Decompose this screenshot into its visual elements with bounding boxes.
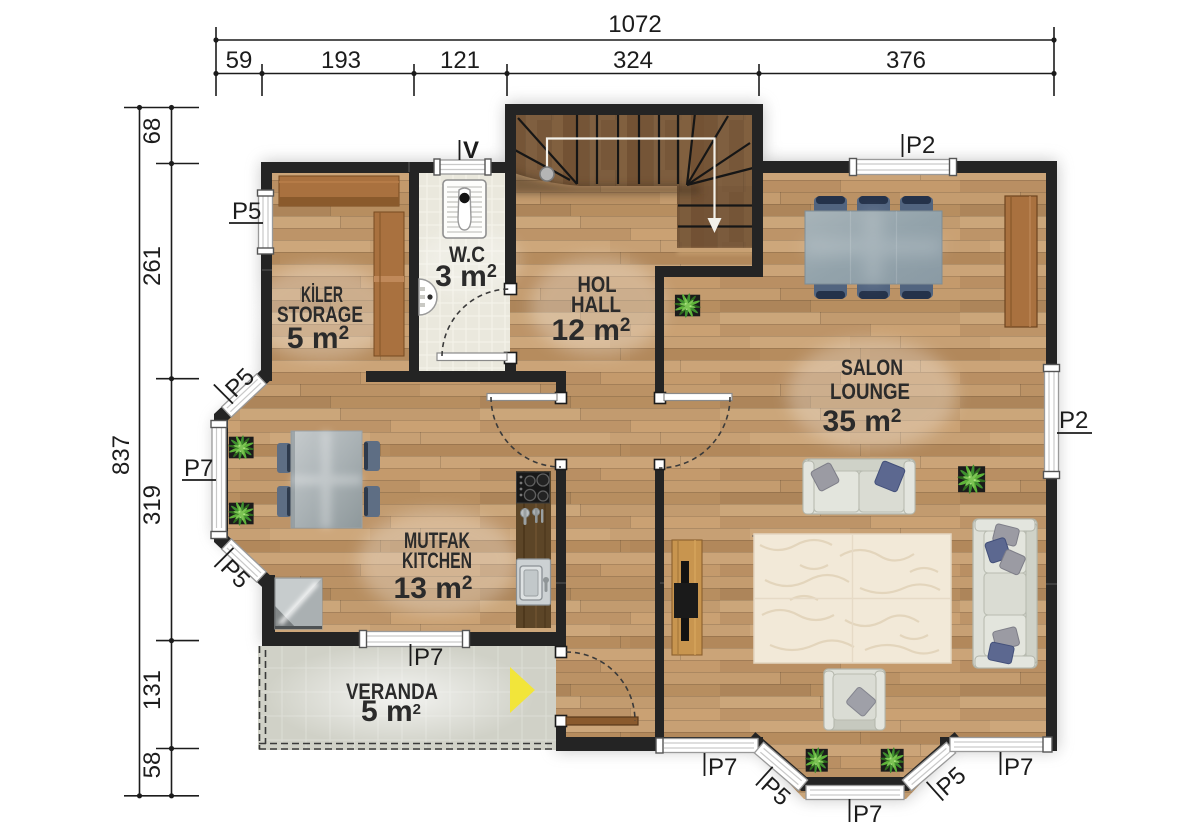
svg-text:P7: P7	[1004, 754, 1033, 781]
svg-text:P7: P7	[853, 801, 882, 828]
svg-text:837: 837	[108, 435, 135, 475]
svg-text:P2: P2	[1059, 407, 1088, 434]
svg-text:13 m2: 13 m2	[394, 572, 473, 605]
svg-text:12 m2: 12 m2	[552, 314, 631, 347]
svg-text:58: 58	[139, 752, 166, 779]
svg-text:SALON: SALON	[841, 355, 903, 380]
svg-text:1072: 1072	[608, 11, 661, 38]
svg-text:LOUNGE: LOUNGE	[830, 379, 910, 404]
svg-text:P7: P7	[184, 455, 213, 482]
svg-text:P7: P7	[708, 754, 737, 781]
svg-text:KITCHEN: KITCHEN	[402, 548, 472, 573]
svg-text:P7: P7	[414, 644, 443, 671]
svg-text:P5: P5	[232, 198, 261, 225]
svg-text:261: 261	[139, 246, 166, 286]
svg-text:131: 131	[139, 670, 166, 710]
svg-text:V: V	[463, 137, 479, 164]
svg-text:324: 324	[613, 47, 653, 74]
svg-text:319: 319	[139, 485, 166, 525]
svg-text:35 m2: 35 m2	[823, 405, 902, 438]
svg-text:193: 193	[321, 47, 361, 74]
svg-text:59: 59	[226, 47, 253, 74]
svg-text:376: 376	[886, 47, 926, 74]
svg-text:5 m2: 5 m2	[361, 695, 421, 728]
svg-text:68: 68	[139, 118, 166, 145]
svg-text:P2: P2	[906, 132, 935, 159]
svg-text:121: 121	[440, 47, 480, 74]
